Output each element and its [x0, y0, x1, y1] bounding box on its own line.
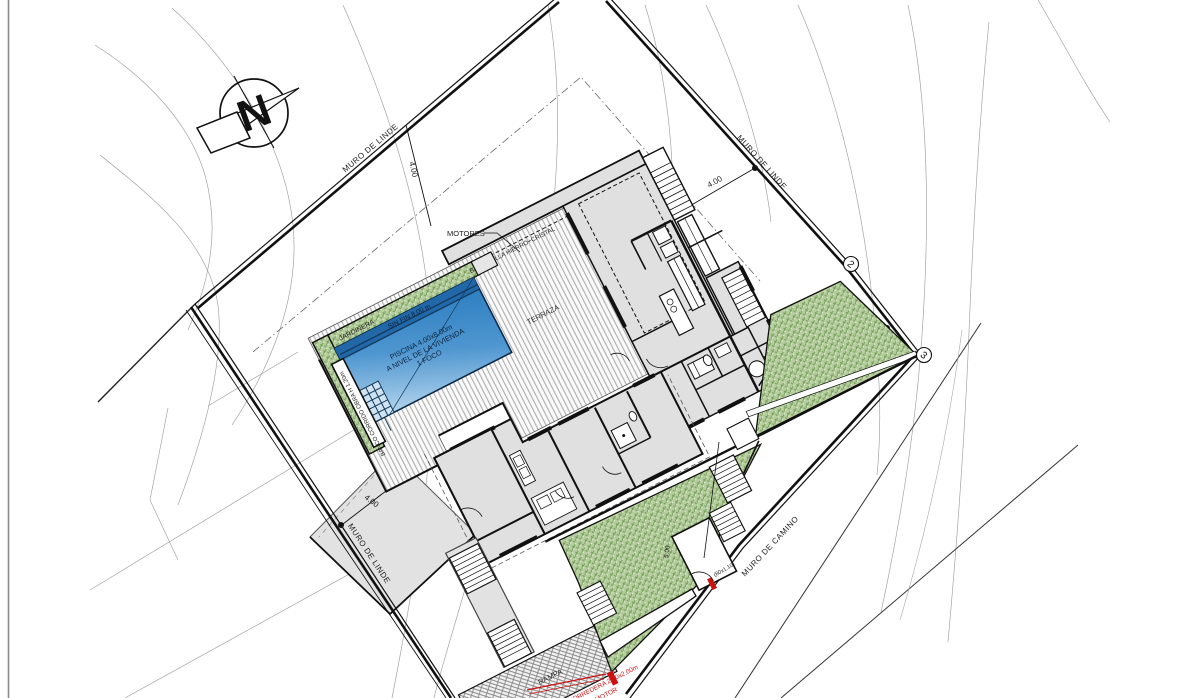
svg-text:MOTORES: MOTORES	[447, 229, 485, 238]
